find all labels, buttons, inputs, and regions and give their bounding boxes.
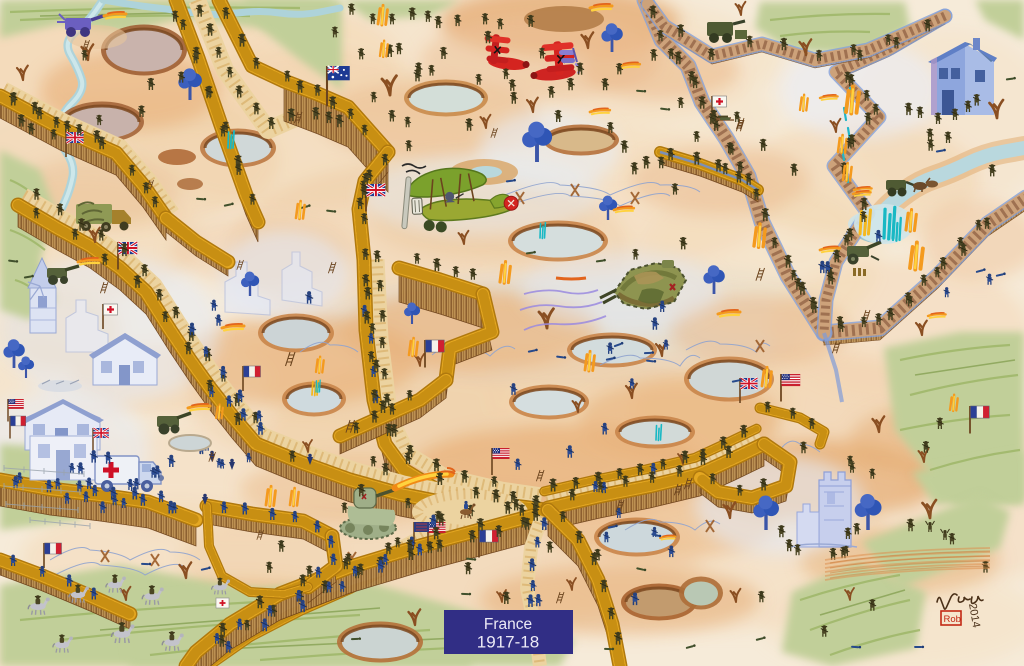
svg-text:1917-18: 1917-18 — [477, 633, 539, 652]
svg-text:France: France — [484, 616, 532, 633]
svg-text:Rob: Rob — [944, 614, 961, 625]
